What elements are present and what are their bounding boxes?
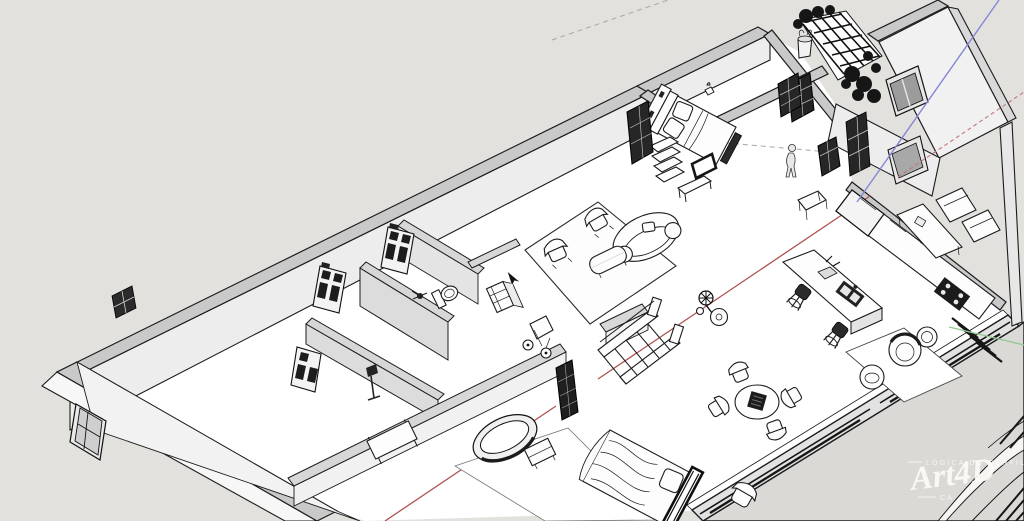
corridor-door[interactable] bbox=[627, 101, 653, 164]
watermark-bottom-caption: CA bbox=[940, 495, 954, 502]
dark-back-door bbox=[846, 112, 870, 176]
barrel-chair[interactable] bbox=[889, 334, 921, 366]
model-viewport[interactable]: LÓGICA DO PERFIL Art4D CA bbox=[0, 0, 1024, 521]
side-table-round[interactable] bbox=[711, 309, 728, 326]
pouf[interactable] bbox=[860, 365, 884, 389]
open-door[interactable] bbox=[291, 347, 321, 392]
